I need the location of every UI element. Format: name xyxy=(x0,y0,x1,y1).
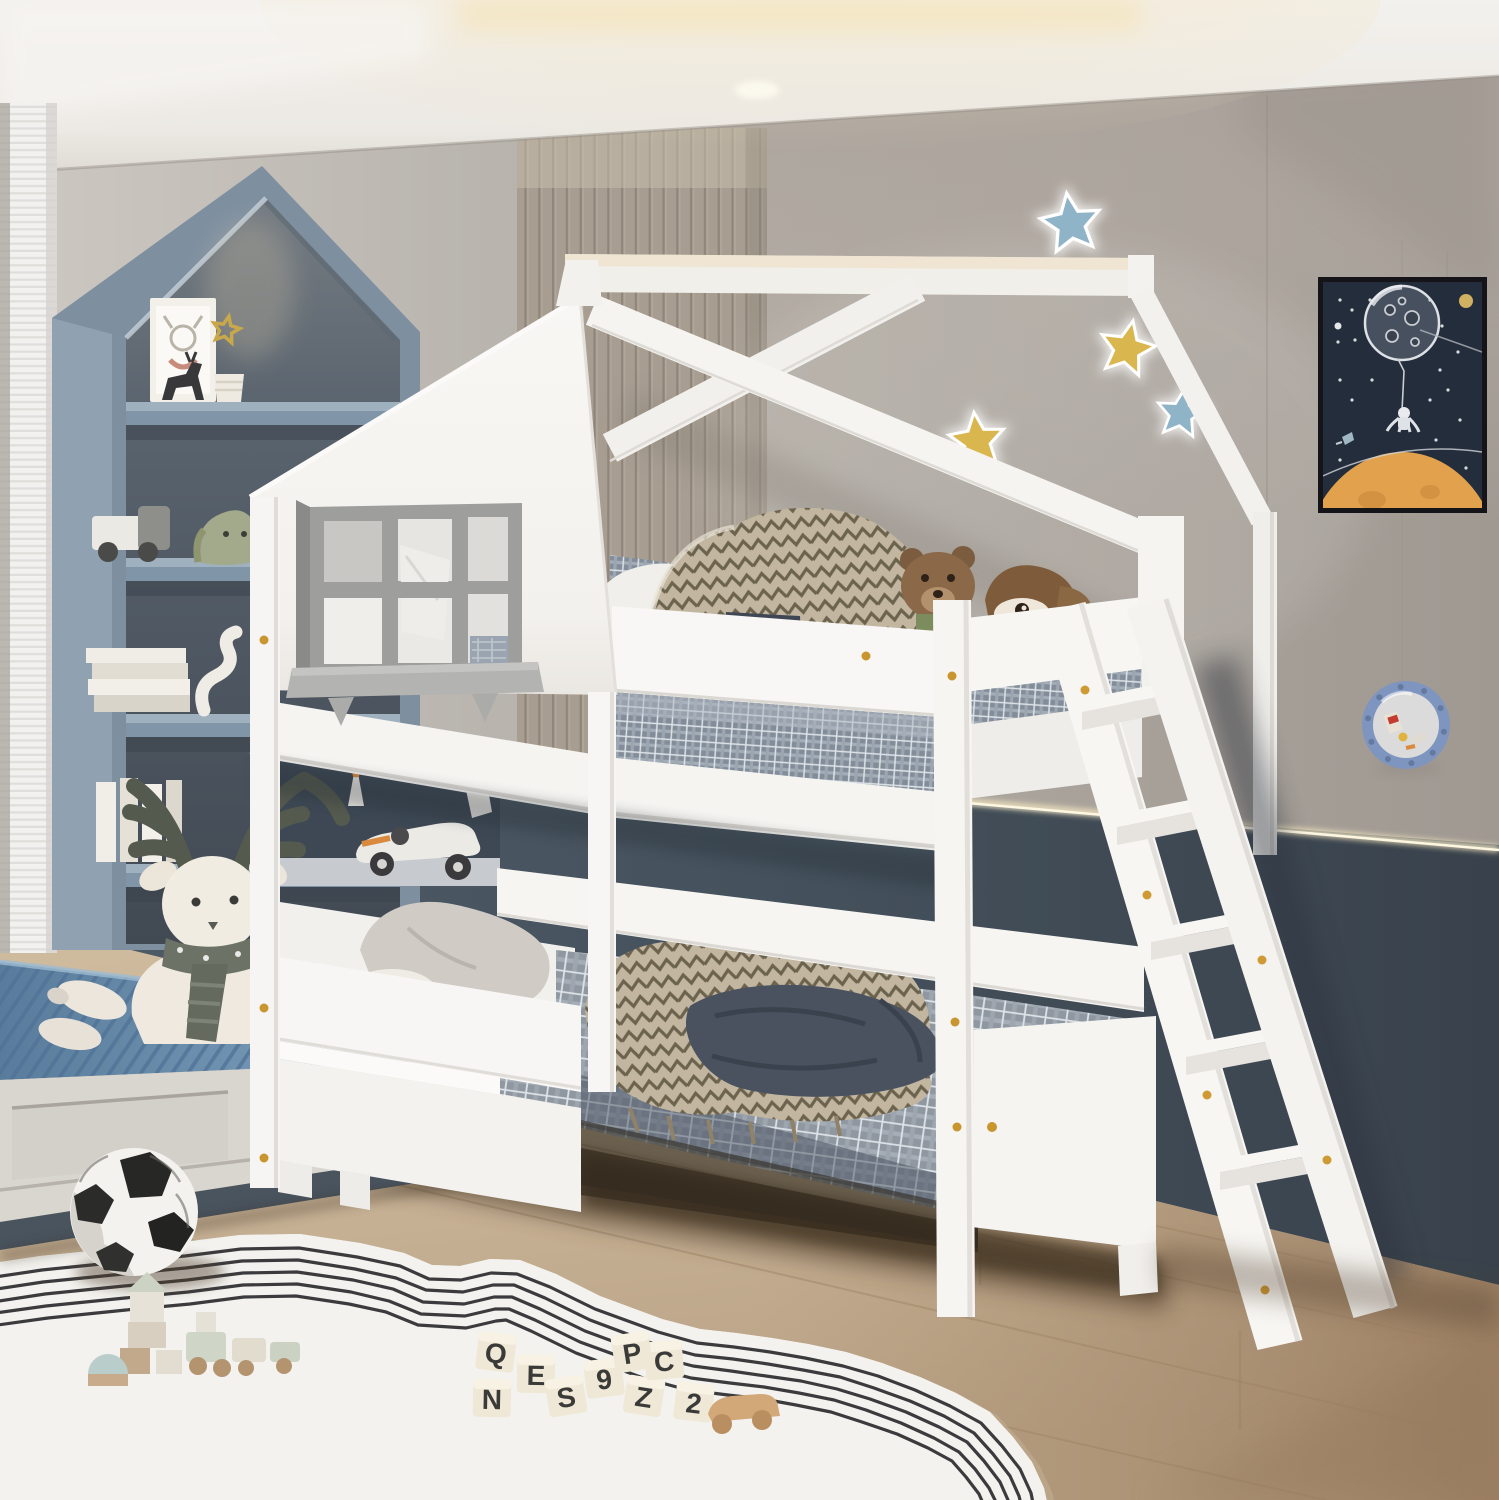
svg-text:C: C xyxy=(653,1345,676,1378)
svg-text:Q: Q xyxy=(483,1337,508,1370)
svg-text:E: E xyxy=(526,1360,545,1391)
svg-text:N: N xyxy=(482,1384,503,1415)
